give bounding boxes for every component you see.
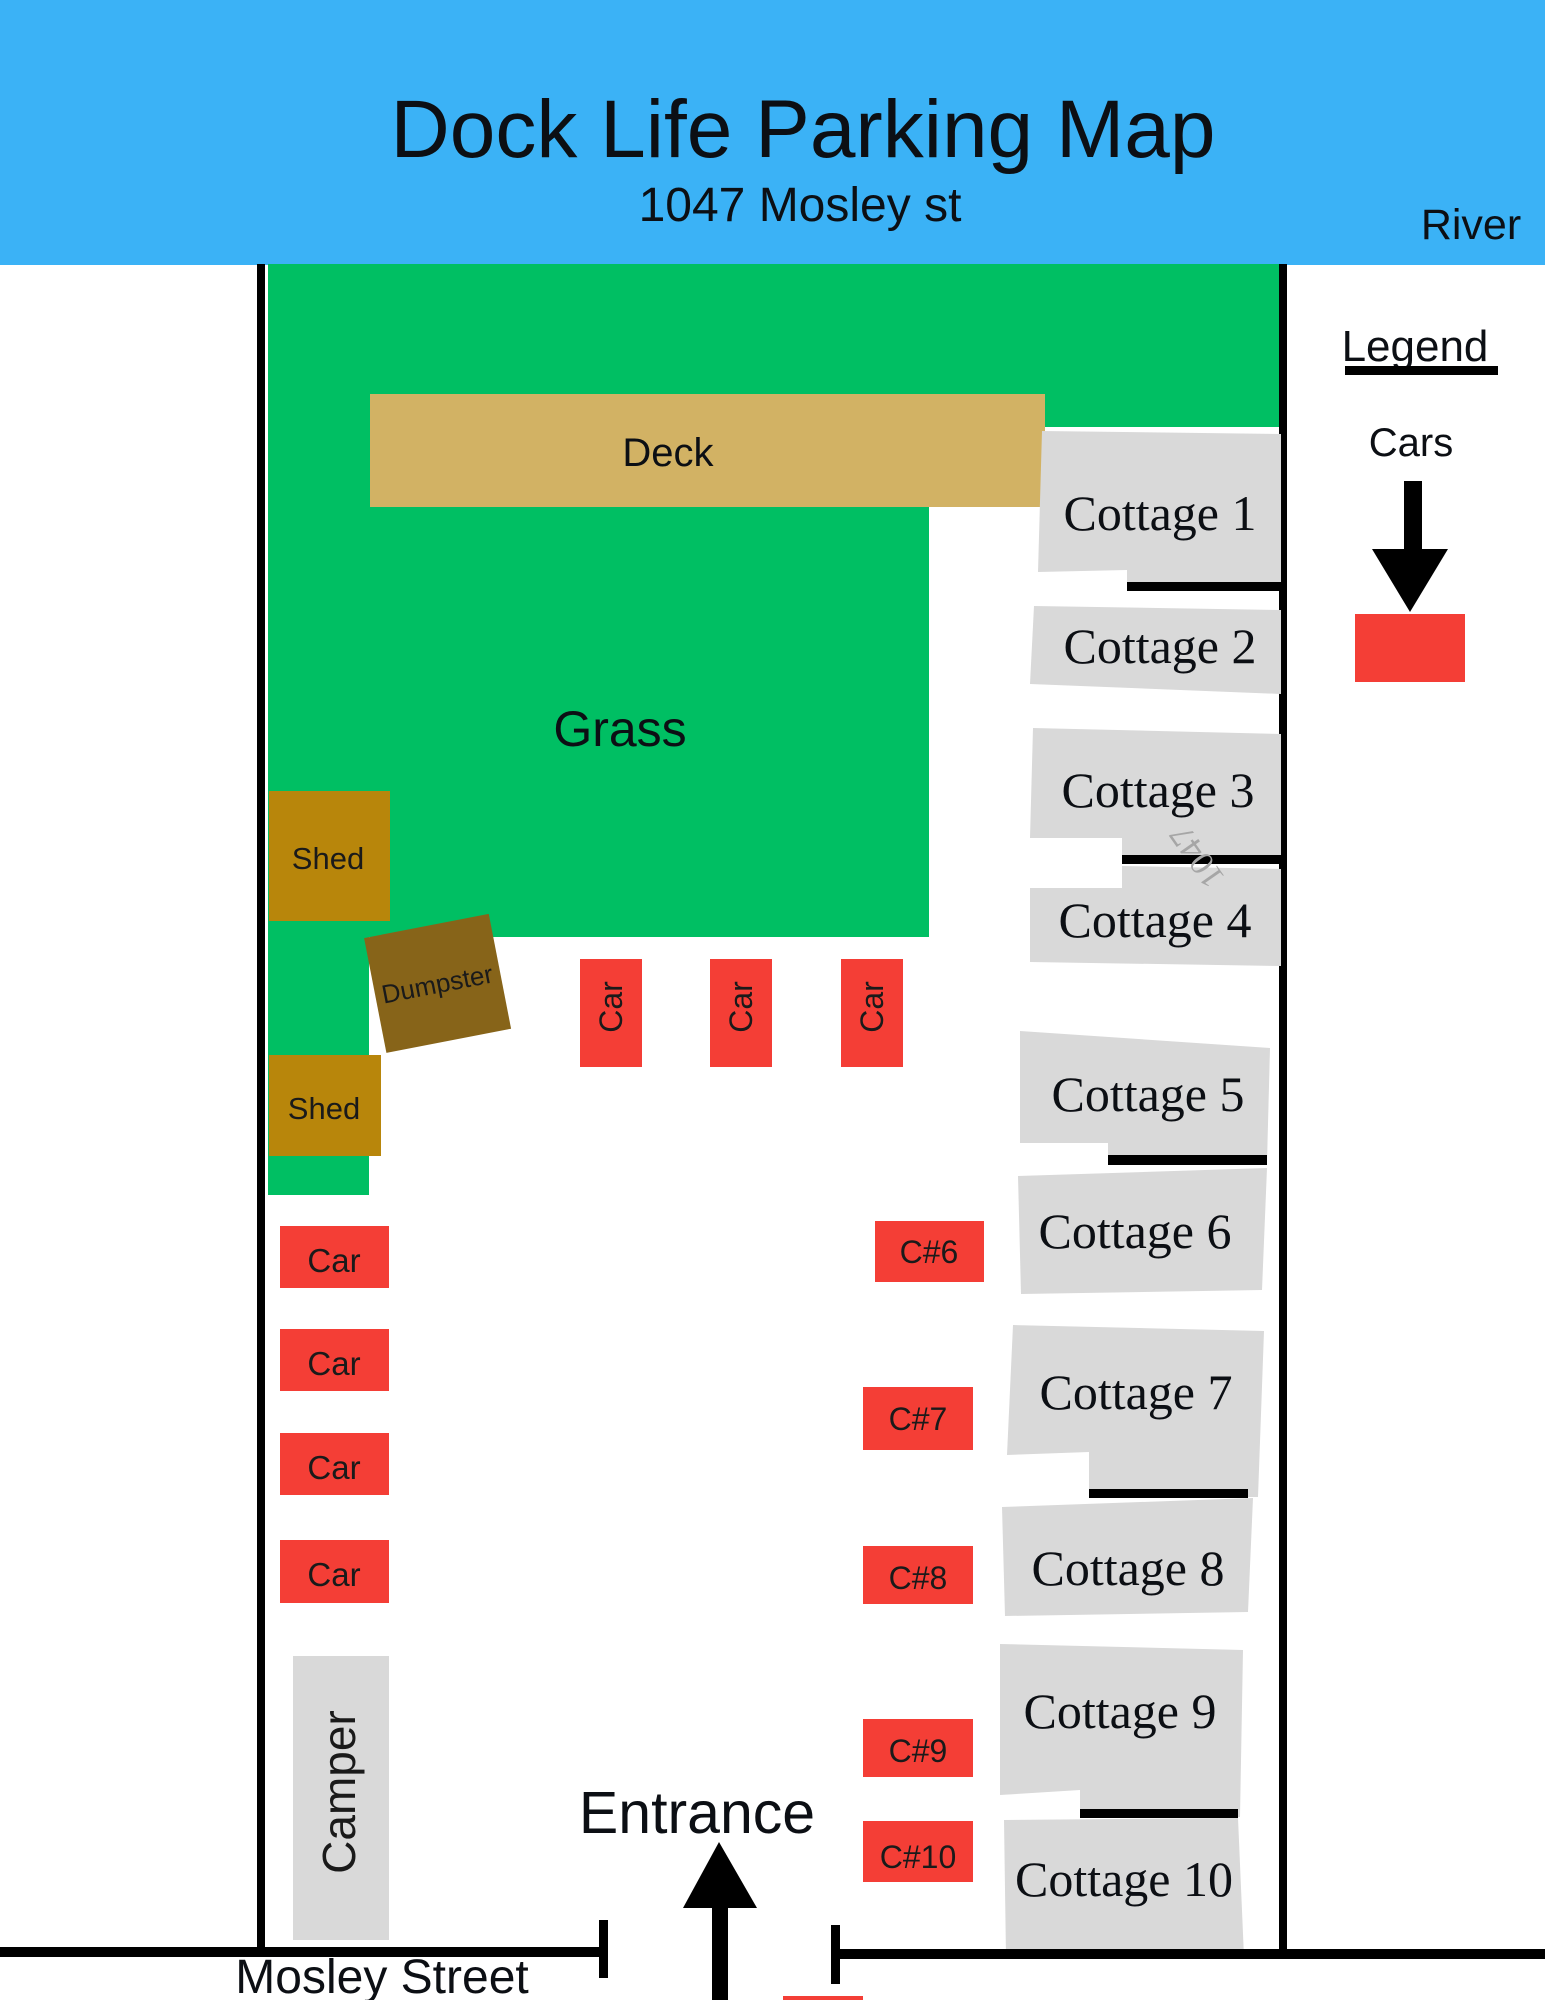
svg-text:Entrance: Entrance bbox=[579, 1780, 815, 1846]
svg-text:C#7: C#7 bbox=[889, 1401, 948, 1437]
svg-text:Mosley Street: Mosley Street bbox=[235, 1951, 528, 2000]
svg-text:C#10: C#10 bbox=[880, 1839, 957, 1875]
svg-text:Car: Car bbox=[307, 1345, 360, 1382]
svg-text:Car: Car bbox=[854, 981, 890, 1033]
svg-text:C#9: C#9 bbox=[889, 1733, 948, 1769]
svg-text:Grass: Grass bbox=[553, 701, 686, 757]
svg-text:River: River bbox=[1421, 201, 1521, 249]
svg-text:Cottage 9: Cottage 9 bbox=[1023, 1683, 1216, 1739]
svg-text:Car: Car bbox=[307, 1556, 360, 1593]
svg-text:Shed: Shed bbox=[292, 841, 364, 876]
svg-text:C#6: C#6 bbox=[900, 1234, 959, 1270]
svg-text:1047 Mosley st: 1047 Mosley st bbox=[639, 179, 962, 232]
svg-text:Cottage 8: Cottage 8 bbox=[1031, 1540, 1224, 1596]
svg-text:Cottage 7: Cottage 7 bbox=[1039, 1364, 1232, 1420]
svg-text:Camper: Camper bbox=[313, 1710, 365, 1874]
svg-text:C#8: C#8 bbox=[889, 1560, 948, 1596]
svg-text:Car: Car bbox=[307, 1449, 360, 1486]
svg-text:Cottage 6: Cottage 6 bbox=[1038, 1203, 1231, 1259]
svg-text:Deck: Deck bbox=[622, 431, 714, 475]
svg-text:Cottage 1: Cottage 1 bbox=[1063, 485, 1256, 541]
svg-text:Shed: Shed bbox=[288, 1091, 360, 1126]
svg-text:Cottage 5: Cottage 5 bbox=[1051, 1066, 1244, 1122]
svg-text:Car: Car bbox=[307, 1242, 360, 1279]
svg-text:Cottage 2: Cottage 2 bbox=[1063, 618, 1256, 674]
svg-text:Cottage 4: Cottage 4 bbox=[1058, 892, 1251, 948]
svg-text:Cottage 10: Cottage 10 bbox=[1015, 1851, 1233, 1907]
svg-text:Legend: Legend bbox=[1342, 322, 1489, 371]
svg-text:Car: Car bbox=[723, 981, 759, 1033]
svg-text:Car: Car bbox=[593, 981, 629, 1033]
svg-text:Cars: Cars bbox=[1369, 421, 1453, 465]
svg-text:Cottage 3: Cottage 3 bbox=[1061, 762, 1254, 818]
svg-text:Dock Life Parking Map: Dock Life Parking Map bbox=[391, 84, 1216, 175]
